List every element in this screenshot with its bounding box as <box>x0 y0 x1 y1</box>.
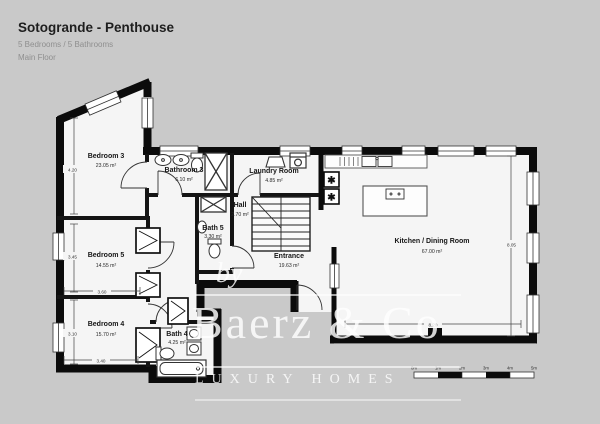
fridge-symbol: ✱ <box>327 176 336 187</box>
window <box>142 98 153 128</box>
window <box>342 146 362 156</box>
dimension-label: 3.45 <box>68 255 77 260</box>
floorplan-page: Sotogrande - Penthouse 5 Bedrooms / 5 Ba… <box>0 0 600 424</box>
room-area: 4.85 m² <box>265 178 283 184</box>
window <box>527 295 539 333</box>
room-area: 4.25 m² <box>168 340 186 346</box>
scale-label: 5m <box>531 366 537 371</box>
shower-icon <box>201 197 226 212</box>
room-area: 23.05 m² <box>96 163 117 169</box>
room-label: Kitchen / Dining Room <box>394 238 469 245</box>
window <box>330 264 339 288</box>
room-label: Hall <box>234 202 247 209</box>
room-label: Entrance <box>274 253 304 260</box>
dimension-label: 3.10 <box>68 332 77 337</box>
dimension-label: 4.20 <box>68 168 77 173</box>
scale-label: 4m <box>507 366 513 371</box>
room-area: 2.70 m² <box>231 212 249 218</box>
room-area: 6.10 m² <box>175 177 193 183</box>
wardrobe-icon <box>168 298 188 324</box>
window <box>438 146 474 156</box>
room-label: Laundry Room <box>249 168 298 175</box>
window <box>53 323 64 352</box>
window <box>53 233 64 260</box>
kitchen-sink-icon <box>362 157 376 167</box>
washing-machine-icon <box>290 153 306 168</box>
room-area: 15.70 m² <box>96 332 117 338</box>
window <box>527 233 539 263</box>
cooktop-icon <box>386 189 404 199</box>
toilet-icon <box>191 153 203 158</box>
room-label: Bedroom 5 <box>88 252 125 259</box>
window <box>486 146 516 156</box>
room-area: 3.30 m² <box>204 234 222 240</box>
room-area: 19.63 m² <box>279 263 300 269</box>
freezer-symbol: ✱ <box>327 193 336 204</box>
room-label: Bathroom 3 <box>165 167 204 174</box>
dimension-label: 8.05 <box>507 243 516 248</box>
watermark-brand: Baerz & Co <box>192 296 442 349</box>
window <box>527 172 539 205</box>
room-label: Bath 4 <box>166 331 188 338</box>
watermark-by: by <box>216 258 242 290</box>
wardrobe-icon <box>136 228 160 253</box>
floorplan-drawing: ✱ ✱ <box>0 0 600 424</box>
staircase <box>252 197 310 251</box>
shower-icon <box>205 153 227 190</box>
scale-label: 3m <box>483 366 489 371</box>
room-label: Bedroom 3 <box>88 153 125 160</box>
window <box>402 146 425 156</box>
room-label: Bedroom 4 <box>88 321 125 328</box>
kitchen-sink-icon <box>378 157 392 167</box>
dimension-label: 3.60 <box>98 290 107 295</box>
room-label: Bath 5 <box>202 225 224 232</box>
wardrobe-icon <box>136 273 160 297</box>
watermark-line <box>195 366 461 368</box>
watermark-line <box>195 399 461 401</box>
laundry-basket-icon <box>266 157 285 167</box>
room-area: 67.00 m² <box>422 249 443 255</box>
room-area: 14.55 m² <box>96 263 117 269</box>
dimension-label: 3.40 <box>97 359 106 364</box>
watermark-tagline: LUXURY HOMES <box>195 372 401 388</box>
